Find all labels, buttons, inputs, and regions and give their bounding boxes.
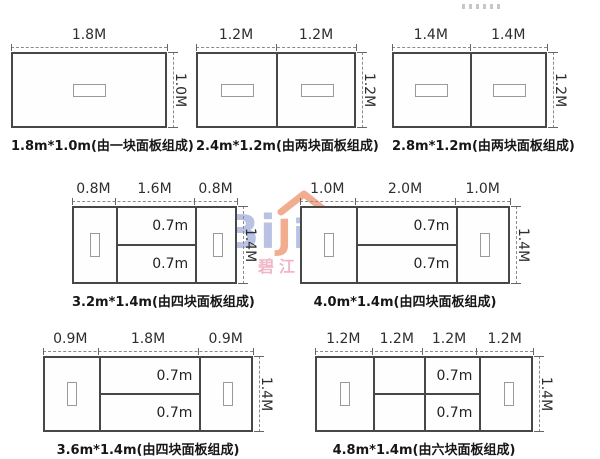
panel-box: 1.2M xyxy=(392,52,547,128)
diagram-caption: 1.8m*1.0m(由一块面板组成) xyxy=(11,135,167,154)
diagram-caption: 2.8m*1.2m(由两块面板组成) xyxy=(392,135,547,154)
panel-box: 0.7m 0.7m 1.4M xyxy=(300,206,510,284)
diagram-4-8x1-4: 1.2M 1.2M 1.2M 1.2M 0.7m 0.7m 1.4M 4.8m xyxy=(315,331,533,458)
top-dimension-line xyxy=(72,198,237,205)
top-dimension-line xyxy=(196,44,356,51)
top-dimension-line xyxy=(11,44,167,51)
brand-accent-letter: J xyxy=(277,212,293,258)
top-dimension-labels: 1.2M 1.2M xyxy=(196,27,356,44)
panel-handle xyxy=(324,233,334,257)
side-dimension-line: 1.0M xyxy=(173,52,174,128)
side-dim-label: 1.4M xyxy=(515,228,531,262)
panel-handle xyxy=(223,382,233,406)
diagram-caption: 3.2m*1.4m(由四块面板组成) xyxy=(72,291,237,310)
dim-label: 1.8M xyxy=(11,27,167,44)
panel-handle xyxy=(504,382,514,406)
noise-artifact xyxy=(462,4,500,9)
side-dim-label: 1.4M xyxy=(242,228,258,262)
dim-label: 1.2M xyxy=(315,331,372,348)
dim-label: 1.2M xyxy=(476,331,533,348)
dim-label: 0.8M xyxy=(72,181,115,198)
diagram-1-8x1-0: 1.8M 1.0M 1.8m*1.0m(由一块面板组成) xyxy=(11,27,167,154)
top-dimension-line xyxy=(315,348,533,355)
dim-label: 0.8M xyxy=(194,181,237,198)
top-dimension-labels: 1.0M 2.0M 1.0M xyxy=(300,181,510,198)
row-dim-label: 0.7m xyxy=(157,368,193,384)
side-dimension-line: 1.4M xyxy=(259,356,260,432)
diagram-caption: 3.6m*1.4m(由四块面板组成) xyxy=(43,439,253,458)
diagram-3-6x1-4: 0.9M 1.8M 0.9M 0.7m 0.7m 1.4M 3.6m*1.4m(… xyxy=(43,331,253,458)
side-dimension-line: 1.4M xyxy=(516,206,517,284)
dim-label: 1.2M xyxy=(422,331,477,348)
dim-label: 1.4M xyxy=(392,27,470,44)
row-dim-label: 0.7m xyxy=(152,218,188,234)
dim-label: 1.2M xyxy=(276,27,356,44)
row-dim-label: 0.7m xyxy=(436,405,472,421)
top-dimension-labels: 1.2M 1.2M 1.2M 1.2M xyxy=(315,331,533,348)
diagram-caption: 4.0m*1.4m(由四块面板组成) xyxy=(300,291,510,310)
panel-box: 1.0M xyxy=(11,52,167,128)
dim-label: 1.4M xyxy=(470,27,548,44)
side-dim-label: 1.4M xyxy=(538,377,554,411)
panel-handle xyxy=(90,233,100,257)
panel-box: 1.2M xyxy=(196,52,356,128)
panel-handle xyxy=(67,382,77,406)
top-dimension-line xyxy=(300,198,510,205)
row-dim-label: 0.7m xyxy=(414,218,450,234)
side-dim-label: 1.0M xyxy=(172,73,188,107)
panel-handle xyxy=(213,233,223,257)
dim-label: 1.2M xyxy=(372,331,422,348)
top-dimension-labels: 0.9M 1.8M 0.9M xyxy=(43,331,253,348)
row-dim-label: 0.7m xyxy=(152,256,188,272)
side-dimension-line: 1.2M xyxy=(362,52,363,128)
row-dim-label: 0.7m xyxy=(157,405,193,421)
dim-label: 0.9M xyxy=(43,331,98,348)
diagram-caption: 2.4m*1.2m(由两块面板组成) xyxy=(196,135,356,154)
row-dim-label: 0.7m xyxy=(436,368,472,384)
panel-handle xyxy=(301,84,334,97)
dim-label: 1.6M xyxy=(115,181,194,198)
panel-handle xyxy=(415,84,448,97)
dim-label: 1.2M xyxy=(196,27,276,44)
panel-handle xyxy=(493,84,526,97)
top-dimension-labels: 1.8M xyxy=(11,27,167,44)
top-dimension-labels: 0.8M 1.6M 0.8M xyxy=(72,181,237,198)
panel-box: 0.7m 0.7m 1.4M xyxy=(43,356,253,432)
side-dimension-line: 1.2M xyxy=(553,52,554,128)
panel-box: 0.7m 0.7m 1.4M xyxy=(315,356,533,432)
top-dimension-line xyxy=(392,44,547,51)
panel-handle xyxy=(221,84,254,97)
top-dimension-labels: 1.4M 1.4M xyxy=(392,27,547,44)
diagram-2-8x1-2: 1.4M 1.4M 1.2M 2.8m*1.2m(由两块面板组成) xyxy=(392,27,547,154)
panel-size-diagram-sheet: BiJion 碧江家居 1.8M 1.0M 1.8m*1.0m(由一块面板组成)… xyxy=(0,0,600,459)
side-dim-label: 1.2M xyxy=(552,73,568,107)
dim-label: 0.9M xyxy=(198,331,253,348)
dim-label: 2.0M xyxy=(355,181,456,198)
dim-label: 1.8M xyxy=(98,331,199,348)
panel-handle xyxy=(73,84,106,97)
side-dim-label: 1.2M xyxy=(361,73,377,107)
dim-label: 1.0M xyxy=(300,181,355,198)
side-dimension-line: 1.4M xyxy=(243,206,244,284)
top-dimension-line xyxy=(43,348,253,355)
side-dimension-line: 1.4M xyxy=(539,356,540,432)
row-dim-label: 0.7m xyxy=(414,256,450,272)
panel-handle xyxy=(340,382,350,406)
panel-handle xyxy=(480,233,490,257)
dim-label: 1.0M xyxy=(455,181,510,198)
diagram-2-4x1-2: 1.2M 1.2M 1.2M 2.4m*1.2m(由两块面板组成) xyxy=(196,27,356,154)
diagram-caption: 4.8m*1.4m(由六块面板组成) xyxy=(315,439,533,458)
panel-box: 0.7m 0.7m 1.4M xyxy=(72,206,237,284)
diagram-3-2x1-4: 0.8M 1.6M 0.8M 0.7m 0.7m 1.4M 3.2m*1.4m(… xyxy=(72,181,237,310)
diagram-4-0x1-4: 1.0M 2.0M 1.0M 0.7m 0.7m 1.4M 4.0m*1.4m(… xyxy=(300,181,510,310)
side-dim-label: 1.4M xyxy=(258,377,274,411)
